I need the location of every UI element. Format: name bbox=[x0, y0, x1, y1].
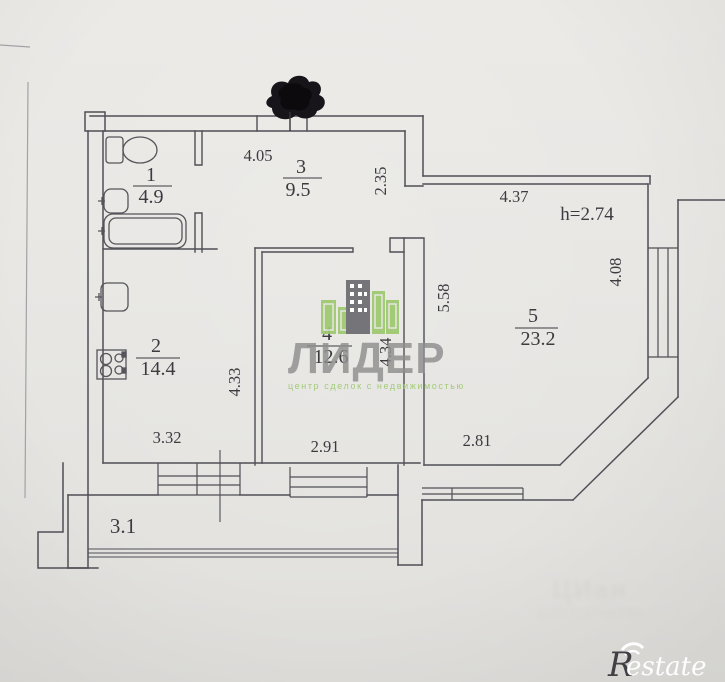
dim-room5-top: 4.37 bbox=[500, 187, 529, 206]
room-label-2: 2 14.4 bbox=[136, 335, 180, 380]
kitchen-sink-icon bbox=[95, 283, 128, 311]
room-number: 1 bbox=[146, 164, 156, 186]
bay-window-walls bbox=[422, 378, 678, 500]
dim-hall-width: 4.05 bbox=[244, 146, 273, 165]
window-room5-bottom bbox=[422, 488, 523, 500]
room-area: 14.4 bbox=[141, 358, 176, 380]
sheet-edge-line bbox=[0, 45, 30, 498]
window-kitchen-balcony bbox=[158, 463, 240, 495]
window-room4-balcony bbox=[290, 467, 367, 497]
entry-door-marker-blob bbox=[266, 76, 324, 131]
room-area: 12.6 bbox=[314, 346, 349, 368]
balcony-railing bbox=[88, 549, 398, 557]
room-number: 4 bbox=[322, 323, 332, 345]
room-area: 23.2 bbox=[521, 328, 556, 350]
room-label-3: 3 9.5 bbox=[283, 156, 322, 201]
room-number: 5 bbox=[528, 305, 538, 327]
bathtub-icon bbox=[98, 214, 186, 248]
room-labels: 1 4.9 2 14.4 3 9.5 4 12.6 5 23.2 3.1 bbox=[110, 156, 558, 538]
ceiling-height-label: h=2.74 bbox=[560, 204, 614, 225]
room-number: 2 bbox=[151, 335, 161, 357]
floorplan-drawing: 1 4.9 2 14.4 3 9.5 4 12.6 5 23.2 3.1 4.0… bbox=[0, 0, 725, 682]
window-room5-right bbox=[648, 248, 678, 357]
dim-room5-depth: 5.58 bbox=[434, 284, 453, 313]
room-label-1: 1 4.9 bbox=[133, 164, 172, 208]
room-label-4: 4 12.6 bbox=[307, 323, 352, 368]
dim-entry-step: 2.35 bbox=[371, 167, 390, 196]
dim-kitchen-depth: 4.33 bbox=[225, 368, 244, 397]
toilet-icon bbox=[106, 137, 157, 163]
dim-room4-width: 2.91 bbox=[311, 437, 340, 456]
dim-room5-right: 4.08 bbox=[606, 258, 625, 287]
dim-kitchen-width: 3.32 bbox=[153, 428, 182, 447]
room-label-5: 5 23.2 bbox=[515, 305, 558, 350]
balcony-label: 3.1 bbox=[110, 514, 136, 538]
stove-icon bbox=[97, 350, 126, 379]
dim-room4-depth: 4.34 bbox=[376, 338, 395, 367]
dim-room5-bottom: 2.81 bbox=[463, 431, 492, 450]
dimension-labels: 4.05 2.35 4.37 h=2.74 4.08 5.58 4.34 4.3… bbox=[153, 146, 625, 456]
room-number: 3 bbox=[296, 156, 306, 178]
room-area: 9.5 bbox=[286, 179, 311, 201]
room-area: 4.9 bbox=[139, 186, 164, 208]
